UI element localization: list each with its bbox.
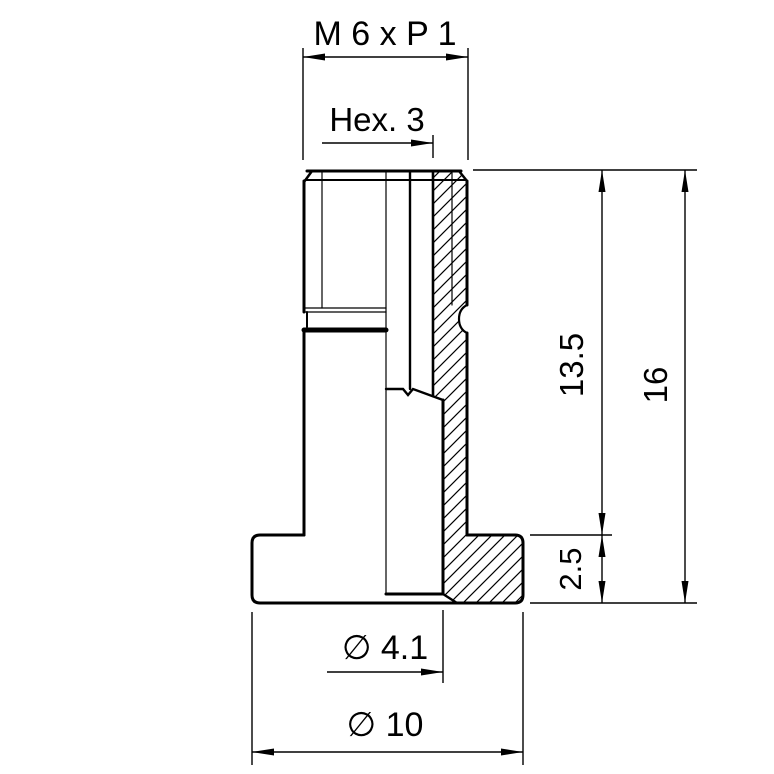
arrowhead-left — [252, 749, 274, 756]
section-hatch-region — [433, 172, 523, 603]
technical-drawing: M 6 x P 1 Hex. 3 13.5 16 2.5 — [0, 0, 774, 774]
arrowhead-down — [682, 581, 689, 603]
arrowhead-right — [421, 669, 443, 676]
dimension-bore-diameter: ∅ 4.1 — [327, 610, 443, 683]
arrowhead-left — [303, 54, 325, 61]
arrowhead-up — [599, 535, 606, 557]
shank-height-label: 13.5 — [553, 333, 590, 397]
arrowhead-right — [501, 749, 523, 756]
arrowhead-right — [411, 140, 433, 147]
dimension-flange-thickness: 2.5 — [530, 535, 697, 603]
arrowhead-up — [599, 170, 606, 192]
dimension-hex-socket: Hex. 3 — [322, 101, 433, 158]
overall-height-label: 16 — [637, 367, 674, 404]
dimension-overall-height: 16 — [637, 170, 689, 603]
dimensions: M 6 x P 1 Hex. 3 13.5 16 2.5 — [252, 15, 697, 765]
arrowhead-down — [599, 581, 606, 603]
drawing-page: { "drawing": { "type": "engineering-draw… — [0, 0, 774, 774]
flange-thickness-label: 2.5 — [553, 547, 588, 590]
dimension-thread: M 6 x P 1 — [303, 15, 468, 160]
arrowhead-up — [682, 170, 689, 192]
flange-diameter-label: ∅ 10 — [347, 706, 424, 744]
arrowhead-down — [599, 513, 606, 535]
arrowhead-right — [446, 54, 468, 61]
hex-dim-lines — [322, 135, 433, 158]
bore-diameter-label: ∅ 4.1 — [342, 629, 428, 667]
hex-dim-label: Hex. 3 — [329, 101, 424, 138]
dimension-shank-height: 13.5 — [553, 170, 606, 535]
thread-dim-label: M 6 x P 1 — [314, 15, 457, 53]
section-hatch — [433, 172, 523, 603]
